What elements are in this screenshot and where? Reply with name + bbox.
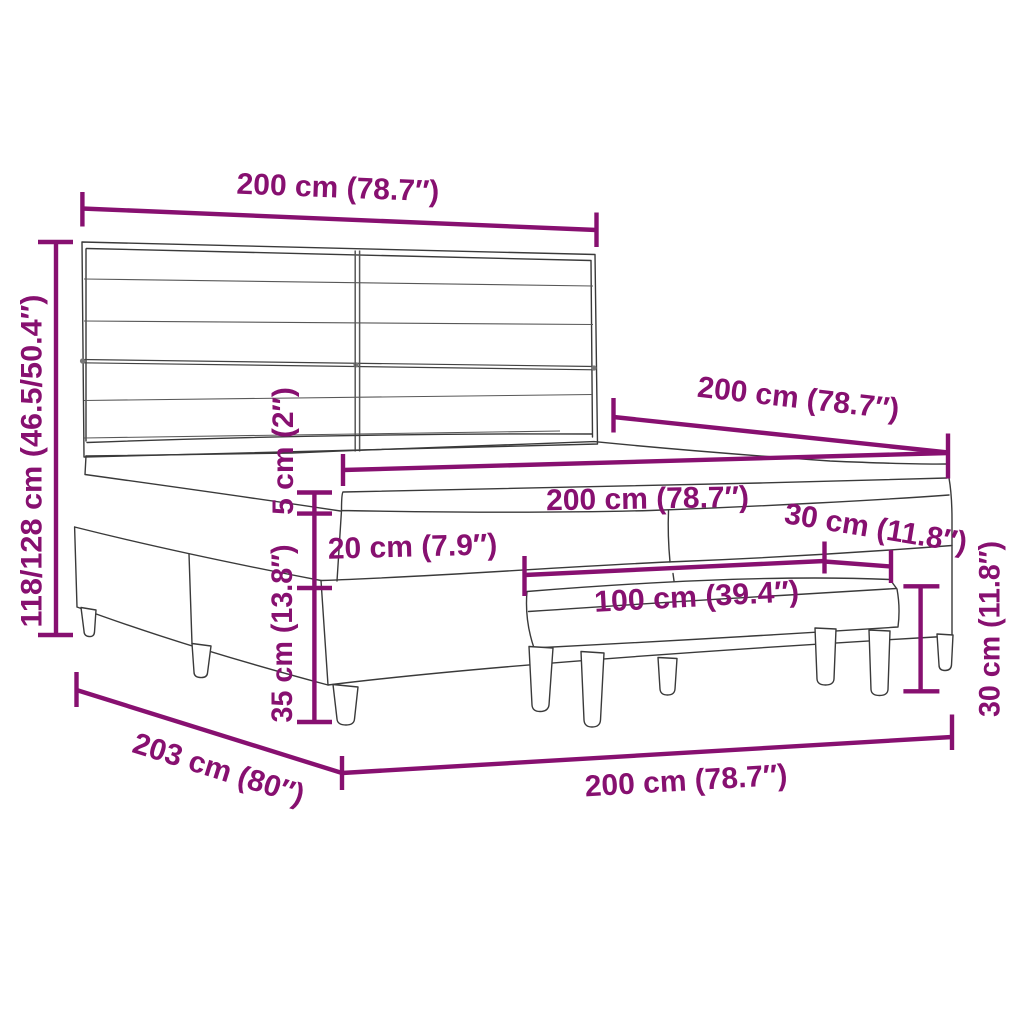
svg-text:5 cm (2″): 5 cm (2″)	[267, 387, 300, 515]
svg-text:20 cm (7.9″): 20 cm (7.9″)	[327, 528, 497, 565]
svg-text:35 cm (13.8″): 35 cm (13.8″)	[266, 545, 299, 723]
svg-text:30 cm (11.8″): 30 cm (11.8″)	[974, 541, 1007, 717]
svg-text:200 cm (78.7″): 200 cm (78.7″)	[546, 481, 749, 518]
svg-text:118/128 cm (46.5/50.4″): 118/128 cm (46.5/50.4″)	[16, 295, 49, 628]
